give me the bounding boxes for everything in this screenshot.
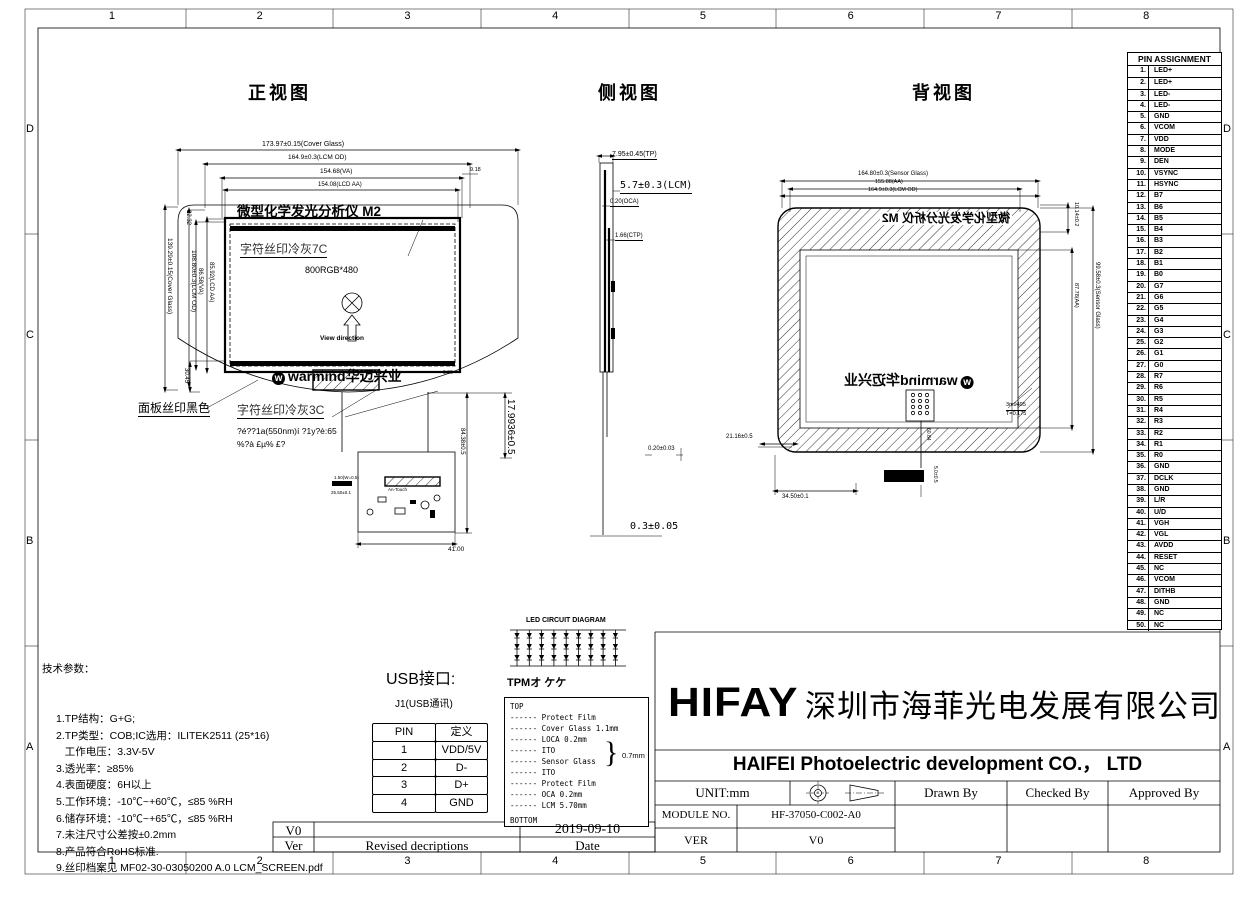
led-circuit-title: LED CIRCUIT DIAGRAM [526,617,606,624]
pin-name: DCLK [1149,474,1221,484]
pin-number: 46. [1128,575,1149,585]
pin-row: 6.VCOM [1128,122,1221,133]
tech-param-line: 1.TP结构：G+G; [56,711,323,728]
pin-row: 26.G1 [1128,348,1221,359]
pin-row: 46.VCOM [1128,574,1221,585]
pin-number: 29. [1128,383,1149,393]
pin-name: LED- [1149,101,1221,111]
usb-subtitle: J1(USB通讯) [395,700,453,711]
tpm-brace: } [604,737,618,769]
pin-number: 10. [1128,169,1149,179]
tape-note-thickness: T=0.175 [1006,412,1026,418]
dim-10-14: 10.14±0.2 [1072,202,1078,226]
pin-name: G4 [1149,316,1221,326]
dim-9-63: 9.63 [443,371,453,376]
usb-table-row: 3D+ [372,776,488,795]
pin-row: 30.R5 [1128,394,1221,405]
grid-col-label-top: 4 [549,11,561,23]
pin-row: 21.G6 [1128,292,1221,303]
drawing-sheet: 正视图 侧视图 背视图 173.97±0.15(Cover Glass) 164… [0,0,1257,901]
usb-table: PIN 定义 1VDD/5V2D-3D+4GND [372,724,488,813]
logo-w-icon: w [272,372,285,385]
pin-number: 15. [1128,225,1149,235]
dim-17-99: 17.9936±0.5 [505,399,516,455]
pin-number: 42. [1128,530,1149,540]
pin-row: 48.GND [1128,597,1221,608]
view-direction-label: View direction [320,336,364,343]
pin-name: HSYNC [1149,180,1221,190]
back-mirrored-logo: wwarmind华迈兴业 [842,373,976,389]
pin-number: 2. [1128,78,1149,88]
dim-lcm-od-width: 164.9±0.3(LCM OD) [288,155,346,162]
pin-row: 44.RESET [1128,552,1221,563]
pin-row: 43.AVDD [1128,540,1221,551]
usb-pin-cell: 1 [372,741,436,760]
pin-number: 24. [1128,327,1149,337]
pin-number: 31. [1128,406,1149,416]
grid-col-label-bottom: 3 [401,856,413,868]
pin-row: 42.VGL [1128,529,1221,540]
revision-ver-value: V0 [273,824,314,838]
tpm-layer: ------ OCA 0.2mm [510,789,648,800]
grid-row-label-left: A [26,742,33,754]
grid-row-label-right: C [1223,330,1231,342]
grid-col-label-bottom: 1 [106,856,118,868]
screen-silkscreen-title: 微型化学发光分析仪 M2 [237,205,381,219]
silkscreen-gray7c-label: 字符丝印冷灰7C [240,243,327,258]
pin-row: 22.G5 [1128,303,1221,314]
usb-pin-cell: 2 [372,759,436,778]
grid-col-label-bottom: 6 [845,856,857,868]
pin-name: B0 [1149,270,1221,280]
pin-number: 22. [1128,304,1149,314]
pin-row: 47.DITHB [1128,586,1221,597]
pin-name: VSYNC [1149,169,1221,179]
grid-col-label-top: 6 [845,11,857,23]
fpc-an-touch-label: An-Touch [388,488,407,493]
usb-col-def: 定义 [435,723,488,742]
tech-param-line: 2.TP类型：COB;IC选用：ILITEK2511 (25*16) [56,728,323,745]
pin-number: 47. [1128,587,1149,597]
grid-col-label-bottom: 2 [254,856,266,868]
dim-1-50: 1.50(W=0.5) [334,476,359,481]
pin-row: 27.G0 [1128,360,1221,371]
revision-col-date: Date [520,839,655,853]
pin-name: GND [1149,485,1221,495]
drawn-by-label: Drawn By [895,786,1007,800]
pin-row: 32.R3 [1128,416,1221,427]
pin-name: NC [1149,609,1221,619]
dim-sensor-glass-width: 164.80±0.3(Sensor Glass) [858,171,928,177]
pin-row: 28.R7 [1128,371,1221,382]
dim-back-aa-height: 87.78(AA) [1072,283,1078,308]
pin-row: 9.DEN [1128,156,1221,167]
dim-va-width: 154.68(VA) [320,169,352,176]
pin-name: VCOM [1149,575,1221,585]
pin-row: 29.R6 [1128,382,1221,393]
tech-param-line: 5.工作环境：-10℃~+60℃，≤85 %RH [56,794,323,811]
dim-21-16: 21.16±0.5 [726,434,753,440]
pin-name: G3 [1149,327,1221,337]
pin-name: DITHB [1149,587,1221,597]
pin-name: G7 [1149,282,1221,292]
tpm-stack-box: TOP ------ Protect Film------ Cover Glas… [504,697,649,827]
pin-row: 14.B5 [1128,213,1221,224]
usb-pin-cell: 4 [372,794,436,813]
pin-number: 5. [1128,112,1149,122]
grid-row-label-right: D [1223,124,1231,136]
pin-row: 50.NC [1128,620,1221,631]
pin-name: NC [1149,621,1221,631]
pin-name: DEN [1149,157,1221,167]
pin-name: B4 [1149,225,1221,235]
pin-row: 15.B4 [1128,224,1221,235]
pin-number: 23. [1128,316,1149,326]
dim-tp-thickness: 7.95±0.45(TP) [612,151,657,160]
tpm-layer: ------ LCM 5.70mm [510,800,648,811]
pin-number: 38. [1128,485,1149,495]
company-name-en: HAIFEI Photoelectric development CO.， LT… [655,755,1220,775]
pin-row: 33.R2 [1128,428,1221,439]
grid-col-label-bottom: 4 [549,856,561,868]
dim-60-84: 60.84 [925,428,930,441]
pin-name: VCOM [1149,123,1221,133]
pin-name: B3 [1149,236,1221,246]
pin-number: 7. [1128,135,1149,145]
pin-number: 1. [1128,66,1149,77]
pin-name: R1 [1149,440,1221,450]
side-view-title: 侧视图 [598,84,661,103]
pin-name: R2 [1149,429,1221,439]
pin-number: 36. [1128,462,1149,472]
tech-param-line: 3.透光率：≥85% [56,761,323,778]
pin-number: 14. [1128,214,1149,224]
pin-row: 1.LED+ [1128,66,1221,77]
dim-lcd-aa-width: 154.08(LCD AA) [318,182,362,188]
pin-number: 25. [1128,338,1149,348]
pin-row: 16.B3 [1128,235,1221,246]
resolution-label: 800RGB*480 [305,266,358,275]
pin-name: R6 [1149,383,1221,393]
dim-0-3-tol: 0.3±0.05 [630,522,678,533]
pin-name: VGH [1149,519,1221,529]
pin-number: 17. [1128,248,1149,258]
pin-number: 27. [1128,361,1149,371]
company-name-cn: 深圳市海菲光电发展有限公司 [805,691,1221,724]
tech-params-title: 技术参数： [42,661,323,678]
revision-col-ver: Ver [273,839,314,853]
pin-number: 8. [1128,146,1149,156]
dim-9-18: 9.18 [470,168,481,174]
dim-30-45: 30.45 [183,368,189,383]
pin-name: B2 [1149,248,1221,258]
pin-row: 37.DCLK [1128,473,1221,484]
pin-number: 12. [1128,191,1149,201]
dim-25-50: 25.50±0.1 [331,491,351,496]
pin-number: 48. [1128,598,1149,608]
dim-22-32: 22.32 [185,210,191,225]
tech-param-line: 4.表面硬度：6H以上 [56,777,323,794]
usb-def-cell: GND [435,794,488,813]
usb-col-pin: PIN [372,723,436,742]
grid-col-label-top: 1 [106,11,118,23]
usb-def-cell: VDD/5V [435,741,488,760]
pin-number: 30. [1128,395,1149,405]
pin-number: 4. [1128,101,1149,111]
tpm-layer: ------ Cover Glass 1.1mm [510,723,648,734]
pin-number: 34. [1128,440,1149,450]
panel-silkscreen-black-label: 面板丝印黑色 [138,402,210,417]
back-mirrored-title: 微型化学发光分析仪 M2 [880,212,1012,225]
tpm-title: TPMオ ケケ [507,678,566,690]
tech-param-line: 工作电压：3.3V-5V [56,744,323,761]
dim-34-50: 34.50±0.1 [782,494,809,500]
pin-name: G0 [1149,361,1221,371]
pin-row: 49.NC [1128,608,1221,619]
pin-name: U/D [1149,508,1221,518]
checked-by-label: Checked By [1007,786,1108,800]
grid-row-label-right: A [1223,742,1230,754]
silkscreen-gray3c-label: 字符丝印冷灰3C [237,404,324,419]
pin-name: AVDD [1149,541,1221,551]
pin-row: 19.B0 [1128,269,1221,280]
pin-number: 9. [1128,157,1149,167]
pin-row: 17.B2 [1128,247,1221,258]
pin-number: 41. [1128,519,1149,529]
pin-number: 43. [1128,541,1149,551]
pin-number: 11. [1128,180,1149,190]
grid-col-label-bottom: 5 [697,856,709,868]
pin-number: 37. [1128,474,1149,484]
grid-col-label-top: 5 [697,11,709,23]
dim-oca-thickness: 0.20(OCA) [610,199,639,207]
pin-row: 20.G7 [1128,281,1221,292]
back-view-title: 背视图 [912,84,975,103]
grid-col-label-top: 3 [401,11,413,23]
pin-number: 19. [1128,270,1149,280]
pin-name: G1 [1149,349,1221,359]
pin-row: 38.GND [1128,484,1221,495]
dim-0-20-tol: 0.20±0.03 [648,446,675,452]
pin-name: GND [1149,112,1221,122]
pin-name: MODE [1149,146,1221,156]
pin-number: 44. [1128,553,1149,563]
usb-header-row: PIN 定义 [372,723,488,742]
front-view-title: 正视图 [248,84,311,103]
usb-pin-cell: 3 [372,776,436,795]
pin-number: 18. [1128,259,1149,269]
usb-def-cell: D- [435,759,488,778]
dim-41-00: 41.00 [448,547,464,554]
pin-name: R3 [1149,417,1221,427]
dim-lcd-aa-height: 85.92(LCD AA) [208,262,214,302]
pin-name: LED- [1149,90,1221,100]
tpm-top-label: TOP [510,701,648,712]
tpm-layers: ------ Protect Film------ Cover Glass 1.… [510,712,648,811]
dim-back-lcm-width: 164.9±0.3(LCM OD) [868,188,917,194]
pin-row: 2.LED+ [1128,77,1221,88]
grid-col-label-top: 2 [254,11,266,23]
pin-number: 26. [1128,349,1149,359]
dim-va-height: 86.58(VA) [197,268,203,295]
pin-name: LED+ [1149,66,1221,77]
pin-name: B7 [1149,191,1221,201]
module-no-value: HF-37050-C002-A0 [737,810,895,822]
pin-number: 6. [1128,123,1149,133]
pin-number: 39. [1128,496,1149,506]
pin-row: 10.VSYNC [1128,168,1221,179]
grid-row-label-left: C [26,330,34,342]
pin-assignment-title: PIN ASSIGNMENT [1128,53,1221,66]
pin-row: 12.B7 [1128,190,1221,201]
tpm-layer: ------ Protect Film [510,712,648,723]
usb-table-row: 4GND [372,794,488,813]
dim-cover-glass-width: 173.97±0.15(Cover Glass) [262,141,344,148]
pin-name: G6 [1149,293,1221,303]
approved-by-label: Approved By [1108,786,1220,800]
grid-col-label-bottom: 8 [1140,856,1152,868]
pin-name: L/R [1149,496,1221,506]
pin-number: 50. [1128,621,1149,631]
pin-name: R5 [1149,395,1221,405]
pin-name: VDD [1149,135,1221,145]
pin-assignment-rows: 1.LED+2.LED+3.LED-4.LED-5.GND6.VCOM7.VDD… [1128,66,1221,631]
pin-row: 7.VDD [1128,134,1221,145]
pin-name: B5 [1149,214,1221,224]
ver-value: V0 [737,834,895,847]
pin-number: 3. [1128,90,1149,100]
dim-84-38: 84.38±0.5 [459,428,465,455]
pin-number: 40. [1128,508,1149,518]
module-no-label: MODULE NO. [655,810,737,822]
tpm-layer: ------ ITO [510,767,648,778]
pin-name: R0 [1149,451,1221,461]
pin-name: G5 [1149,304,1221,314]
pin-row: 36.GND [1128,461,1221,472]
grid-col-label-top: 7 [992,11,1004,23]
pin-row: 45.NC [1128,563,1221,574]
pin-number: 49. [1128,609,1149,619]
usb-title: USB接口: [386,672,455,689]
usb-def-cell: D+ [435,776,488,795]
revision-date-value: 2019-09-10 [520,823,655,838]
pin-name: LED+ [1149,78,1221,88]
front-logo-text: warmind华迈兴业 [288,368,402,384]
pin-name: GND [1149,598,1221,608]
front-logo: wwarmind华迈兴业 [272,369,402,385]
silkscreen-note-line1: ?é??1a(550nm)í ?1y?è:65 [237,427,337,436]
pin-row: 40.U/D [1128,507,1221,518]
usb-table-row: 1VDD/5V [372,741,488,760]
pin-name: R7 [1149,372,1221,382]
usb-table-row: 2D- [372,759,488,778]
pin-row: 24.G3 [1128,326,1221,337]
pin-number: 13. [1128,203,1149,213]
pin-row: 8.MODE [1128,145,1221,156]
grid-col-label-top: 8 [1140,11,1152,23]
dim-cover-glass-height: 139.29±0.15(Cover Glass) [165,238,172,314]
dim-back-aa-width: 155.88(AA) [875,180,903,186]
pin-name: R4 [1149,406,1221,416]
ver-label: VER [655,834,737,847]
pin-row: 5.GND [1128,111,1221,122]
pin-row: 35.R0 [1128,450,1221,461]
pin-name: GND [1149,462,1221,472]
pin-number: 20. [1128,282,1149,292]
pin-row: 18.B1 [1128,258,1221,269]
tpm-layer: ------ Protect Film [510,778,648,789]
pin-row: 4.LED- [1128,100,1221,111]
revision-col-desc: Revised decriptions [314,839,520,853]
pin-name: VGL [1149,530,1221,540]
dim-lcm-thickness: 5.7±0.3(LCM) [620,181,692,194]
pin-name: NC [1149,564,1221,574]
pin-name: B6 [1149,203,1221,213]
pin-number: 16. [1128,236,1149,246]
pin-number: 28. [1128,372,1149,382]
pin-number: 21. [1128,293,1149,303]
pin-row: 41.VGH [1128,518,1221,529]
pin-number: 33. [1128,429,1149,439]
pin-row: 11.HSYNC [1128,179,1221,190]
pin-name: B1 [1149,259,1221,269]
grid-row-label-right: B [1223,536,1230,548]
grid-row-label-left: B [26,536,33,548]
dim-sensor-glass-height: 99.58±0.3(Sensor Glass) [1094,262,1100,329]
pin-row: 31.R4 [1128,405,1221,416]
back-logo-text: warmind华迈兴业 [844,372,958,388]
dim-5-0: 5.0±0.5 [932,466,937,483]
pin-number: 45. [1128,564,1149,574]
pin-row: 3.LED- [1128,89,1221,100]
dim-ctp-thickness: 1.66(CTP) [615,233,643,241]
grid-col-label-bottom: 7 [992,856,1004,868]
dim-lcm-od-height: 108.80±0.3(LCM OD) [189,250,196,312]
pin-row: 13.B6 [1128,202,1221,213]
tech-params-block: 技术参数： 1.TP结构：G+G;2.TP类型：COB;IC选用：ILITEK2… [42,628,323,894]
tpm-layer: ------ LOCA 0.2mm [510,734,648,745]
tpm-brace-label: 0.7mm [622,752,645,760]
unit-label: UNIT:mm [655,786,790,800]
pin-row: 34.R1 [1128,439,1221,450]
pin-name: G2 [1149,338,1221,348]
grid-row-label-left: D [26,124,34,136]
pin-name: RESET [1149,553,1221,563]
hifay-logo: HIFAY [668,682,799,724]
pin-assignment-table: PIN ASSIGNMENT 1.LED+2.LED+3.LED-4.LED-5… [1127,52,1222,630]
logo-w-icon: w [961,376,974,389]
pin-number: 32. [1128,417,1149,427]
pin-row: 23.G4 [1128,315,1221,326]
pin-number: 35. [1128,451,1149,461]
pin-row: 39.L/R [1128,495,1221,506]
silkscreen-note-line2: %?à £µ% £? [237,440,285,449]
tape-note-3m: 3m9495 [1006,403,1026,411]
pin-row: 25.G2 [1128,337,1221,348]
tech-param-line: 9.丝印档案见 MF02-30-03050200 A.0 LCM_SCREEN.… [56,860,323,877]
